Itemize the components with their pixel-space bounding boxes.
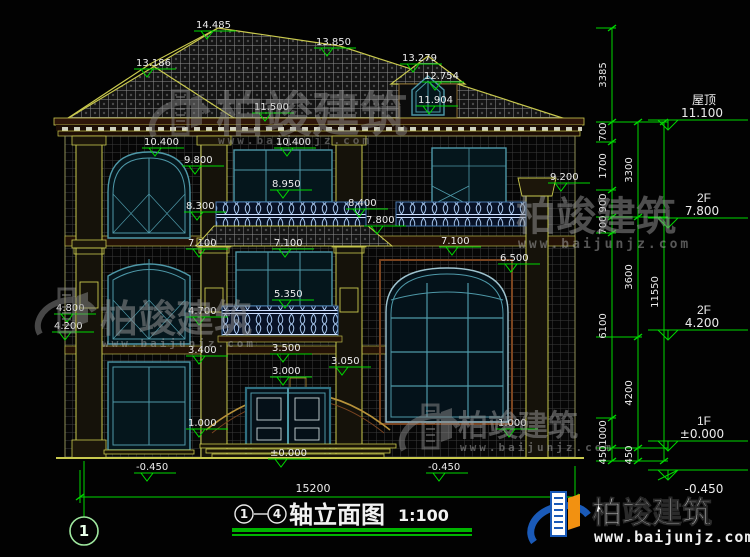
pilaster-center-left xyxy=(197,136,231,458)
svg-text:±0.000: ±0.000 xyxy=(270,448,307,459)
svg-text:4.200: 4.200 xyxy=(685,316,719,330)
brand-name: 柏竣建筑 xyxy=(592,496,712,530)
svg-text:12.754: 12.754 xyxy=(424,71,459,82)
svg-text:9.200: 9.200 xyxy=(550,172,579,183)
svg-text:-0.450: -0.450 xyxy=(685,482,724,496)
svg-text:8.950: 8.950 xyxy=(272,179,301,190)
watermark-url: www.baijunjz.com xyxy=(460,441,614,454)
svg-text:-0.450: -0.450 xyxy=(136,462,168,473)
level-marker-roof: 屋顶 11.100 xyxy=(648,93,748,130)
watermark-url: www.baijunjz.com xyxy=(218,134,372,147)
title-axis-from: 1 xyxy=(240,507,248,521)
svg-text:13.186: 13.186 xyxy=(136,58,171,69)
watermark-brand: 柏竣建筑 xyxy=(458,409,578,443)
brand-logo-bottom-right: 柏竣建筑 www.baijunjz.com xyxy=(531,492,750,546)
watermark-url: www.baijunjz.com xyxy=(102,337,256,350)
brand-url: www.baijunjz.com xyxy=(594,528,750,546)
svg-text:3.050: 3.050 xyxy=(331,356,360,367)
svg-text:10.400: 10.400 xyxy=(144,137,179,148)
svg-text:7.100: 7.100 xyxy=(188,238,217,249)
svg-text:11.904: 11.904 xyxy=(418,95,453,106)
svg-text:3.500: 3.500 xyxy=(272,343,301,354)
svg-text:11550: 11550 xyxy=(650,276,661,308)
svg-text:7.800: 7.800 xyxy=(685,204,719,218)
watermark-brand: 柏竣建筑 xyxy=(100,299,252,341)
svg-text:3.000: 3.000 xyxy=(272,366,301,377)
tall-arched-window-right xyxy=(380,260,512,424)
watermark-right: 柏竣建筑 www.baijunjz.com xyxy=(516,195,691,252)
watermark-brand: 柏竣建筑 xyxy=(516,195,676,239)
balustrade-3f-center xyxy=(216,202,366,226)
window-3f-center xyxy=(234,150,332,202)
svg-text:3300: 3300 xyxy=(624,157,635,182)
window-1f-left xyxy=(104,362,194,454)
title-block: 1 4 轴立面图 1:100 xyxy=(232,501,472,536)
level-markers-right: 屋顶 11.100 2F 7.800 2F 4.200 1F ±0.000 -0… xyxy=(648,93,748,496)
svg-text:6100: 6100 xyxy=(598,313,609,338)
elevation-mark: -0.450 xyxy=(134,462,176,481)
level-marker-minus045: -0.450 xyxy=(648,470,748,496)
drawing-scale: 1:100 xyxy=(398,506,449,525)
level-marker-2f-420: 2F 4.200 xyxy=(648,303,748,340)
svg-text:7.100: 7.100 xyxy=(441,236,470,247)
svg-text:1.000: 1.000 xyxy=(188,418,217,429)
svg-text:6.500: 6.500 xyxy=(500,253,529,264)
svg-text:13.850: 13.850 xyxy=(316,37,351,48)
svg-text:2F: 2F xyxy=(697,191,711,205)
svg-text:13.279: 13.279 xyxy=(402,53,437,64)
svg-text:14.485: 14.485 xyxy=(196,20,231,31)
svg-text:9.800: 9.800 xyxy=(184,155,213,166)
svg-text:3385: 3385 xyxy=(598,62,609,87)
svg-text:11.100: 11.100 xyxy=(681,106,723,120)
elevation-mark: -0.450 xyxy=(426,462,468,481)
svg-text:8.400: 8.400 xyxy=(348,198,377,209)
svg-text:2F: 2F xyxy=(697,303,711,317)
logo-accent xyxy=(568,494,580,530)
axis-bubble-1: 1 xyxy=(70,461,98,545)
svg-text:3600: 3600 xyxy=(624,264,635,289)
svg-text:700: 700 xyxy=(598,122,609,141)
title-underline-thin xyxy=(232,534,472,536)
title-axis-to: 4 xyxy=(273,507,281,521)
svg-text:1: 1 xyxy=(79,522,89,540)
svg-text:7.100: 7.100 xyxy=(274,238,303,249)
elevation-mark: ±0.000 xyxy=(268,448,310,467)
title-underline-thick xyxy=(232,528,472,532)
svg-text:1F: 1F xyxy=(697,414,711,428)
svg-text:-0.450: -0.450 xyxy=(428,462,460,473)
arched-window-3f-left xyxy=(108,152,190,238)
svg-text:7.800: 7.800 xyxy=(366,215,395,226)
watermark-url: www.baijunjz.com xyxy=(518,237,691,252)
svg-text:450: 450 xyxy=(624,445,635,464)
svg-text:5.350: 5.350 xyxy=(274,289,303,300)
svg-text:15200: 15200 xyxy=(296,482,331,495)
cad-elevation-sheet: 14.485 13.850 13.186 13.279 12.754 11.90… xyxy=(0,0,750,557)
svg-text:1700: 1700 xyxy=(598,153,609,178)
svg-text:屋顶: 屋顶 xyxy=(692,93,716,107)
window-3f-right xyxy=(432,148,506,205)
elevation-drawing: 14.485 13.850 13.186 13.279 12.754 11.90… xyxy=(0,0,750,557)
level-marker-1f: 1F ±0.000 xyxy=(648,414,748,451)
drawing-title: 轴立面图 xyxy=(289,501,385,529)
balustrade-3f-right xyxy=(396,202,526,226)
svg-text:±0.000: ±0.000 xyxy=(680,427,724,441)
svg-text:8.300: 8.300 xyxy=(186,201,215,212)
svg-text:4200: 4200 xyxy=(624,380,635,405)
